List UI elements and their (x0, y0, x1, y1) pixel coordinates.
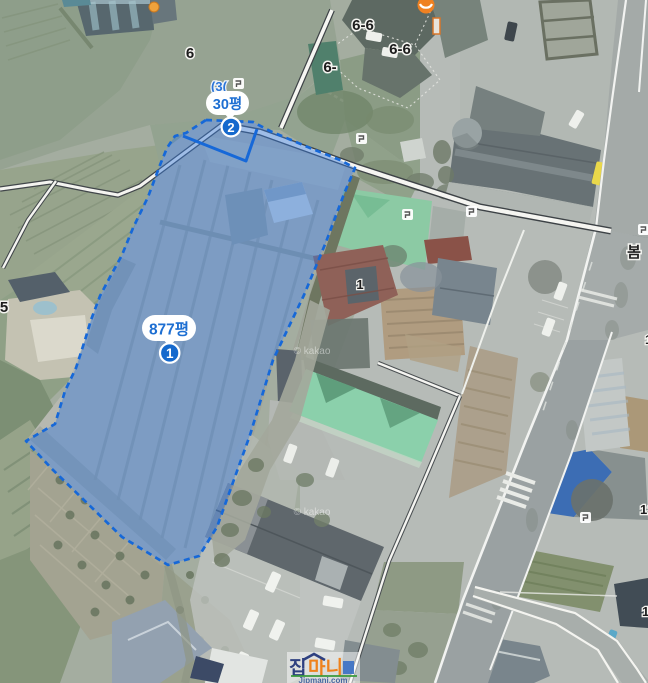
svg-text:2: 2 (227, 120, 234, 135)
svg-text:877평: 877평 (149, 321, 189, 339)
svg-text:6-: 6- (323, 59, 336, 76)
svg-text:봄: 봄 (627, 244, 641, 261)
svg-text:6-6: 6-6 (389, 41, 411, 58)
svg-text:30평: 30평 (213, 95, 242, 113)
svg-text:Jipmani.com: Jipmani.com (299, 676, 348, 683)
svg-text:© kakao: © kakao (294, 346, 331, 357)
svg-text:© kakao: © kakao (294, 507, 331, 518)
svg-text:6-6: 6-6 (352, 17, 374, 34)
svg-text:1: 1 (166, 346, 174, 361)
svg-text:5: 5 (0, 299, 8, 316)
svg-text:6: 6 (186, 45, 194, 62)
svg-text:13: 13 (640, 502, 648, 517)
svg-text:13: 13 (642, 604, 648, 619)
svg-text:1: 1 (356, 277, 363, 292)
